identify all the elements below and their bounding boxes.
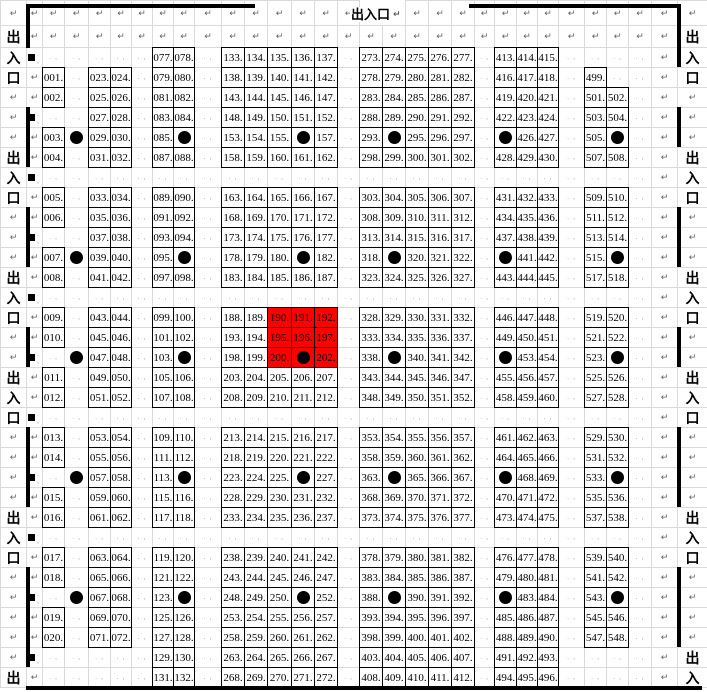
spot-245[interactable]: 245. (267, 567, 292, 588)
spot-100[interactable]: 100. (173, 307, 195, 328)
spot-037[interactable]: 037. (88, 227, 111, 248)
spot-441[interactable]: 441. (516, 247, 538, 268)
spot-485[interactable]: 485. (494, 607, 517, 628)
spot-359[interactable]: 359. (382, 447, 406, 468)
spot-461[interactable]: 461. (494, 427, 517, 448)
spot-512[interactable]: 512. (606, 207, 629, 228)
spot-289[interactable]: 289. (382, 107, 406, 128)
spot-252[interactable]: 252. (314, 587, 338, 608)
spot-111[interactable]: 111. (152, 447, 174, 468)
spot-330[interactable]: 330. (405, 307, 429, 328)
spot-360[interactable]: 360. (405, 447, 429, 468)
spot-390[interactable]: 390. (405, 587, 429, 608)
spot-404[interactable]: 404. (382, 647, 406, 668)
spot-314[interactable]: 314. (382, 227, 406, 248)
spot-123[interactable]: 123. (152, 587, 174, 608)
spot-237[interactable]: 237. (314, 507, 338, 528)
spot-349[interactable]: 349. (382, 387, 406, 408)
spot-248[interactable]: 248. (221, 587, 245, 608)
spot-325[interactable]: 325. (405, 267, 429, 288)
spot-521[interactable]: 521. (584, 327, 607, 348)
spot-dot-marker[interactable] (382, 127, 406, 148)
spot-167[interactable]: 167. (314, 187, 338, 208)
spot-180[interactable]: 180. (267, 247, 292, 268)
spot-383[interactable]: 383. (359, 567, 383, 588)
spot-352[interactable]: 352. (451, 387, 475, 408)
spot-014[interactable]: 014. (42, 447, 65, 468)
spot-423[interactable]: 423. (516, 107, 538, 128)
spot-164[interactable]: 164. (244, 187, 268, 208)
spot-216[interactable]: 216. (291, 427, 315, 448)
spot-424[interactable]: 424. (537, 107, 559, 128)
spot-234[interactable]: 234. (244, 507, 268, 528)
spot-112[interactable]: 112. (173, 447, 195, 468)
spot-188[interactable]: 188. (221, 307, 245, 328)
spot-135[interactable]: 135. (267, 47, 292, 68)
spot-487[interactable]: 487. (537, 607, 559, 628)
spot-157[interactable]: 157. (314, 127, 338, 148)
spot-231[interactable]: 231. (291, 487, 315, 508)
spot-185[interactable]: 185. (267, 267, 292, 288)
spot-168[interactable]: 168. (221, 207, 245, 228)
spot-393[interactable]: 393. (359, 607, 383, 628)
spot-227[interactable]: 227. (314, 467, 338, 488)
spot-253[interactable]: 253. (221, 607, 245, 628)
spot-422[interactable]: 422. (494, 107, 517, 128)
spot-366[interactable]: 366. (428, 467, 452, 488)
spot-471[interactable]: 471. (516, 487, 538, 508)
spot-207[interactable]: 207. (314, 367, 338, 388)
spot-384[interactable]: 384. (382, 567, 406, 588)
spot-195[interactable]: 195. (267, 327, 292, 348)
spot-089[interactable]: 089. (152, 187, 174, 208)
spot-144[interactable]: 144. (244, 87, 268, 108)
spot-015[interactable]: 015. (42, 487, 65, 508)
spot-265[interactable]: 265. (267, 647, 292, 668)
spot-174[interactable]: 174. (244, 227, 268, 248)
spot-dot-marker[interactable] (382, 247, 406, 268)
spot-505[interactable]: 505. (584, 127, 607, 148)
spot-391[interactable]: 391. (428, 587, 452, 608)
spot-087[interactable]: 087. (152, 147, 174, 168)
spot-030[interactable]: 030. (110, 127, 132, 148)
spot-445[interactable]: 445. (537, 267, 559, 288)
spot-502[interactable]: 502. (606, 87, 629, 108)
spot-448[interactable]: 448. (537, 307, 559, 328)
spot-058[interactable]: 058. (110, 467, 132, 488)
spot-238[interactable]: 238. (221, 547, 245, 568)
spot-078[interactable]: 078. (173, 47, 195, 68)
spot-214[interactable]: 214. (244, 427, 268, 448)
spot-490[interactable]: 490. (537, 627, 559, 648)
spot-240[interactable]: 240. (267, 547, 292, 568)
spot-460[interactable]: 460. (537, 387, 559, 408)
spot-068[interactable]: 068. (110, 587, 132, 608)
spot-131[interactable]: 131. (152, 667, 174, 688)
spot-044[interactable]: 044. (110, 307, 132, 328)
spot-443[interactable]: 443. (494, 267, 517, 288)
spot-333[interactable]: 333. (359, 327, 383, 348)
spot-262[interactable]: 262. (314, 627, 338, 648)
spot-098[interactable]: 098. (173, 267, 195, 288)
spot-107[interactable]: 107. (152, 387, 174, 408)
spot-545[interactable]: 545. (584, 607, 607, 628)
spot-161[interactable]: 161. (291, 147, 315, 168)
spot-394[interactable]: 394. (382, 607, 406, 628)
spot-244[interactable]: 244. (244, 567, 268, 588)
spot-122[interactable]: 122. (173, 567, 195, 588)
spot-224[interactable]: 224. (244, 467, 268, 488)
spot-dot-marker[interactable] (291, 347, 315, 368)
spot-387[interactable]: 387. (451, 567, 475, 588)
spot-377[interactable]: 377. (451, 507, 475, 528)
spot-426[interactable]: 426. (516, 127, 538, 148)
spot-dot-marker[interactable] (494, 347, 517, 368)
spot-205[interactable]: 205. (267, 367, 292, 388)
spot-004[interactable]: 004. (42, 147, 65, 168)
spot-187[interactable]: 187. (314, 267, 338, 288)
spot-094[interactable]: 094. (173, 227, 195, 248)
spot-405[interactable]: 405. (405, 647, 429, 668)
spot-548[interactable]: 548. (606, 627, 629, 648)
spot-008[interactable]: 008. (42, 267, 65, 288)
spot-209[interactable]: 209. (244, 387, 268, 408)
spot-009[interactable]: 009. (42, 307, 65, 328)
spot-242[interactable]: 242. (314, 547, 338, 568)
spot-523[interactable]: 523. (584, 347, 607, 368)
spot-437[interactable]: 437. (494, 227, 517, 248)
spot-069[interactable]: 069. (88, 607, 111, 628)
spot-474[interactable]: 474. (516, 507, 538, 528)
spot-397[interactable]: 397. (451, 607, 475, 628)
spot-108[interactable]: 108. (173, 387, 195, 408)
spot-291[interactable]: 291. (428, 107, 452, 128)
aisle-dot-marker[interactable] (64, 247, 89, 268)
spot-051[interactable]: 051. (88, 387, 111, 408)
spot-129[interactable]: 129. (152, 647, 174, 668)
spot-279[interactable]: 279. (382, 67, 406, 88)
spot-217[interactable]: 217. (314, 427, 338, 448)
spot-dot-marker[interactable] (291, 587, 315, 608)
spot-083[interactable]: 083. (152, 107, 174, 128)
spot-286[interactable]: 286. (428, 87, 452, 108)
spot-003[interactable]: 003. (42, 127, 65, 148)
spot-374[interactable]: 374. (382, 507, 406, 528)
spot-230[interactable]: 230. (267, 487, 292, 508)
spot-298[interactable]: 298. (359, 147, 383, 168)
spot-213[interactable]: 213. (221, 427, 245, 448)
spot-128[interactable]: 128. (173, 627, 195, 648)
spot-132[interactable]: 132. (173, 667, 195, 688)
spot-085[interactable]: 085. (152, 127, 174, 148)
spot-052[interactable]: 052. (110, 387, 132, 408)
spot-dot-marker[interactable] (382, 347, 406, 368)
spot-193[interactable]: 193. (221, 327, 245, 348)
spot-028[interactable]: 028. (110, 107, 132, 128)
spot-145[interactable]: 145. (267, 87, 292, 108)
spot-093[interactable]: 093. (152, 227, 174, 248)
spot-312[interactable]: 312. (451, 207, 475, 228)
spot-007[interactable]: 007. (42, 247, 65, 268)
spot-dot-marker[interactable] (173, 247, 195, 268)
spot-032[interactable]: 032. (110, 147, 132, 168)
spot-106[interactable]: 106. (173, 367, 195, 388)
spot-455[interactable]: 455. (494, 367, 517, 388)
spot-309[interactable]: 309. (382, 207, 406, 228)
spot-421[interactable]: 421. (537, 87, 559, 108)
spot-347[interactable]: 347. (451, 367, 475, 388)
spot-483[interactable]: 483. (516, 587, 538, 608)
spot-419[interactable]: 419. (494, 87, 517, 108)
spot-368[interactable]: 368. (359, 487, 383, 508)
spot-dot-marker[interactable] (606, 127, 629, 148)
spot-371[interactable]: 371. (428, 487, 452, 508)
spot-434[interactable]: 434. (494, 207, 517, 228)
spot-439[interactable]: 439. (537, 227, 559, 248)
spot-375[interactable]: 375. (405, 507, 429, 528)
spot-001[interactable]: 001. (42, 67, 65, 88)
spot-202[interactable]: 202. (314, 347, 338, 368)
spot-054[interactable]: 054. (110, 427, 132, 448)
spot-160[interactable]: 160. (267, 147, 292, 168)
spot-472[interactable]: 472. (537, 487, 559, 508)
spot-378[interactable]: 378. (359, 547, 383, 568)
spot-342[interactable]: 342. (451, 347, 475, 368)
spot-527[interactable]: 527. (584, 387, 607, 408)
spot-385[interactable]: 385. (405, 567, 429, 588)
spot-318[interactable]: 318. (359, 247, 383, 268)
spot-341[interactable]: 341. (428, 347, 452, 368)
spot-013[interactable]: 013. (42, 427, 65, 448)
spot-222[interactable]: 222. (314, 447, 338, 468)
spot-539[interactable]: 539. (584, 547, 607, 568)
spot-540[interactable]: 540. (606, 547, 629, 568)
spot-063[interactable]: 063. (88, 547, 111, 568)
spot-446[interactable]: 446. (494, 307, 517, 328)
spot-171[interactable]: 171. (291, 207, 315, 228)
spot-117[interactable]: 117. (152, 507, 174, 528)
spot-470[interactable]: 470. (494, 487, 517, 508)
spot-025[interactable]: 025. (88, 87, 111, 108)
spot-138[interactable]: 138. (221, 67, 245, 88)
spot-162[interactable]: 162. (314, 147, 338, 168)
spot-459[interactable]: 459. (516, 387, 538, 408)
spot-261[interactable]: 261. (291, 627, 315, 648)
spot-285[interactable]: 285. (405, 87, 429, 108)
spot-396[interactable]: 396. (428, 607, 452, 628)
spot-308[interactable]: 308. (359, 207, 383, 228)
aisle-dot-marker[interactable] (64, 127, 89, 148)
spot-335[interactable]: 335. (405, 327, 429, 348)
spot-357[interactable]: 357. (451, 427, 475, 448)
spot-392[interactable]: 392. (451, 587, 475, 608)
spot-175[interactable]: 175. (267, 227, 292, 248)
spot-dot-marker[interactable] (494, 587, 517, 608)
spot-229[interactable]: 229. (244, 487, 268, 508)
spot-321[interactable]: 321. (428, 247, 452, 268)
spot-363[interactable]: 363. (359, 467, 383, 488)
spot-186[interactable]: 186. (291, 267, 315, 288)
spot-481[interactable]: 481. (537, 567, 559, 588)
spot-281[interactable]: 281. (428, 67, 452, 88)
spot-344[interactable]: 344. (382, 367, 406, 388)
spot-433[interactable]: 433. (537, 187, 559, 208)
spot-509[interactable]: 509. (584, 187, 607, 208)
spot-395[interactable]: 395. (405, 607, 429, 628)
spot-320[interactable]: 320. (405, 247, 429, 268)
spot-141[interactable]: 141. (291, 67, 315, 88)
spot-401[interactable]: 401. (428, 627, 452, 648)
spot-533[interactable]: 533. (584, 467, 607, 488)
spot-079[interactable]: 079. (152, 67, 174, 88)
spot-235[interactable]: 235. (267, 507, 292, 528)
spot-134[interactable]: 134. (244, 47, 268, 68)
spot-315[interactable]: 315. (405, 227, 429, 248)
spot-060[interactable]: 060. (110, 487, 132, 508)
spot-080[interactable]: 080. (173, 67, 195, 88)
spot-dot-marker[interactable] (606, 467, 629, 488)
spot-337[interactable]: 337. (451, 327, 475, 348)
spot-283[interactable]: 283. (359, 87, 383, 108)
spot-484[interactable]: 484. (537, 587, 559, 608)
spot-024[interactable]: 024. (110, 67, 132, 88)
spot-017[interactable]: 017. (42, 547, 65, 568)
spot-241[interactable]: 241. (291, 547, 315, 568)
spot-418[interactable]: 418. (537, 67, 559, 88)
spot-dot-marker[interactable] (494, 247, 517, 268)
spot-299[interactable]: 299. (382, 147, 406, 168)
spot-255[interactable]: 255. (267, 607, 292, 628)
spot-295[interactable]: 295. (405, 127, 429, 148)
spot-492[interactable]: 492. (516, 647, 538, 668)
spot-005[interactable]: 005. (42, 187, 65, 208)
spot-328[interactable]: 328. (359, 307, 383, 328)
spot-113[interactable]: 113. (152, 467, 174, 488)
spot-031[interactable]: 031. (88, 147, 111, 168)
aisle-dot-marker[interactable] (64, 467, 89, 488)
spot-219[interactable]: 219. (244, 447, 268, 468)
spot-125[interactable]: 125. (152, 607, 174, 628)
spot-208[interactable]: 208. (221, 387, 245, 408)
spot-356[interactable]: 356. (428, 427, 452, 448)
spot-477[interactable]: 477. (516, 547, 538, 568)
spot-105[interactable]: 105. (152, 367, 174, 388)
spot-305[interactable]: 305. (405, 187, 429, 208)
spot-444[interactable]: 444. (516, 267, 538, 288)
spot-402[interactable]: 402. (451, 627, 475, 648)
spot-206[interactable]: 206. (291, 367, 315, 388)
spot-316[interactable]: 316. (428, 227, 452, 248)
spot-155[interactable]: 155. (267, 127, 292, 148)
spot-027[interactable]: 027. (88, 107, 111, 128)
spot-508[interactable]: 508. (606, 147, 629, 168)
spot-064[interactable]: 064. (110, 547, 132, 568)
spot-292[interactable]: 292. (451, 107, 475, 128)
spot-154[interactable]: 154. (244, 127, 268, 148)
spot-066[interactable]: 066. (110, 567, 132, 588)
spot-496[interactable]: 496. (537, 667, 559, 688)
spot-197[interactable]: 197. (314, 327, 338, 348)
spot-258[interactable]: 258. (221, 627, 245, 648)
spot-277[interactable]: 277. (451, 47, 475, 68)
spot-491[interactable]: 491. (494, 647, 517, 668)
spot-499[interactable]: 499. (584, 67, 607, 88)
spot-535[interactable]: 535. (584, 487, 607, 508)
spot-053[interactable]: 053. (88, 427, 111, 448)
spot-354[interactable]: 354. (382, 427, 406, 448)
spot-465[interactable]: 465. (516, 447, 538, 468)
spot-dot-marker[interactable] (606, 347, 629, 368)
spot-409[interactable]: 409. (382, 667, 406, 688)
spot-271[interactable]: 271. (291, 667, 315, 688)
spot-301[interactable]: 301. (428, 147, 452, 168)
spot-200[interactable]: 200. (267, 347, 292, 368)
spot-504[interactable]: 504. (606, 107, 629, 128)
spot-273[interactable]: 273. (359, 47, 383, 68)
spot-260[interactable]: 260. (267, 627, 292, 648)
spot-420[interactable]: 420. (516, 87, 538, 108)
spot-010[interactable]: 010. (42, 327, 65, 348)
spot-249[interactable]: 249. (244, 587, 268, 608)
spot-302[interactable]: 302. (451, 147, 475, 168)
spot-453[interactable]: 453. (516, 347, 538, 368)
spot-166[interactable]: 166. (291, 187, 315, 208)
spot-400[interactable]: 400. (405, 627, 429, 648)
spot-326[interactable]: 326. (428, 267, 452, 288)
spot-543[interactable]: 543. (584, 587, 607, 608)
spot-450[interactable]: 450. (516, 327, 538, 348)
spot-228[interactable]: 228. (221, 487, 245, 508)
spot-049[interactable]: 049. (88, 367, 111, 388)
spot-059[interactable]: 059. (88, 487, 111, 508)
spot-399[interactable]: 399. (382, 627, 406, 648)
spot-520[interactable]: 520. (606, 307, 629, 328)
spot-118[interactable]: 118. (173, 507, 195, 528)
spot-411[interactable]: 411. (428, 667, 452, 688)
spot-276[interactable]: 276. (428, 47, 452, 68)
spot-127[interactable]: 127. (152, 627, 174, 648)
spot-091[interactable]: 091. (152, 207, 174, 228)
spot-507[interactable]: 507. (584, 147, 607, 168)
spot-212[interactable]: 212. (314, 387, 338, 408)
spot-525[interactable]: 525. (584, 367, 607, 388)
spot-267[interactable]: 267. (314, 647, 338, 668)
spot-061[interactable]: 061. (88, 507, 111, 528)
spot-488[interactable]: 488. (494, 627, 517, 648)
spot-388[interactable]: 388. (359, 587, 383, 608)
spot-280[interactable]: 280. (405, 67, 429, 88)
spot-336[interactable]: 336. (428, 327, 452, 348)
spot-449[interactable]: 449. (494, 327, 517, 348)
spot-376[interactable]: 376. (428, 507, 452, 528)
spot-082[interactable]: 082. (173, 87, 195, 108)
spot-177[interactable]: 177. (314, 227, 338, 248)
spot-447[interactable]: 447. (516, 307, 538, 328)
spot-266[interactable]: 266. (291, 647, 315, 668)
spot-532[interactable]: 532. (606, 447, 629, 468)
spot-463[interactable]: 463. (537, 427, 559, 448)
spot-272[interactable]: 272. (314, 667, 338, 688)
spot-153[interactable]: 153. (221, 127, 245, 148)
spot-056[interactable]: 056. (110, 447, 132, 468)
spot-462[interactable]: 462. (516, 427, 538, 448)
spot-547[interactable]: 547. (584, 627, 607, 648)
spot-478[interactable]: 478. (537, 547, 559, 568)
spot-522[interactable]: 522. (606, 327, 629, 348)
spot-101[interactable]: 101. (152, 327, 174, 348)
spot-170[interactable]: 170. (267, 207, 292, 228)
spot-546[interactable]: 546. (606, 607, 629, 628)
